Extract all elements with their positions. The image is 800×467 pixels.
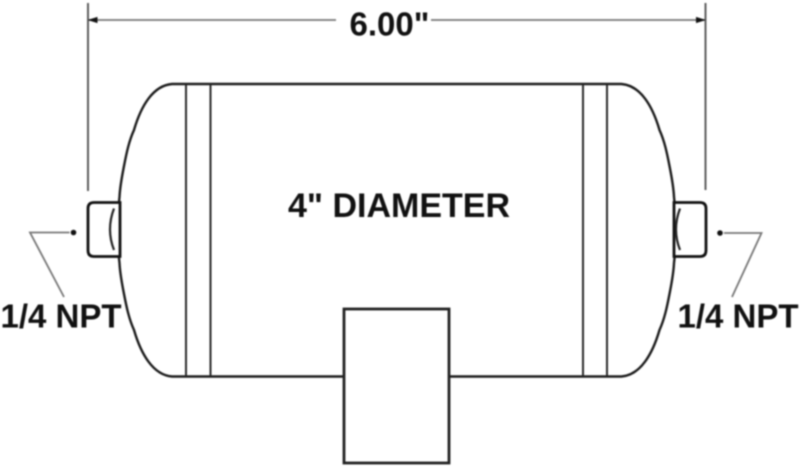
svg-text:1/4 NPT: 1/4 NPT	[678, 298, 799, 335]
svg-text:1/4 NPT: 1/4 NPT	[1, 298, 122, 335]
svg-text:6.00": 6.00"	[350, 5, 430, 42]
svg-text:4" DIAMETER: 4" DIAMETER	[288, 187, 510, 225]
